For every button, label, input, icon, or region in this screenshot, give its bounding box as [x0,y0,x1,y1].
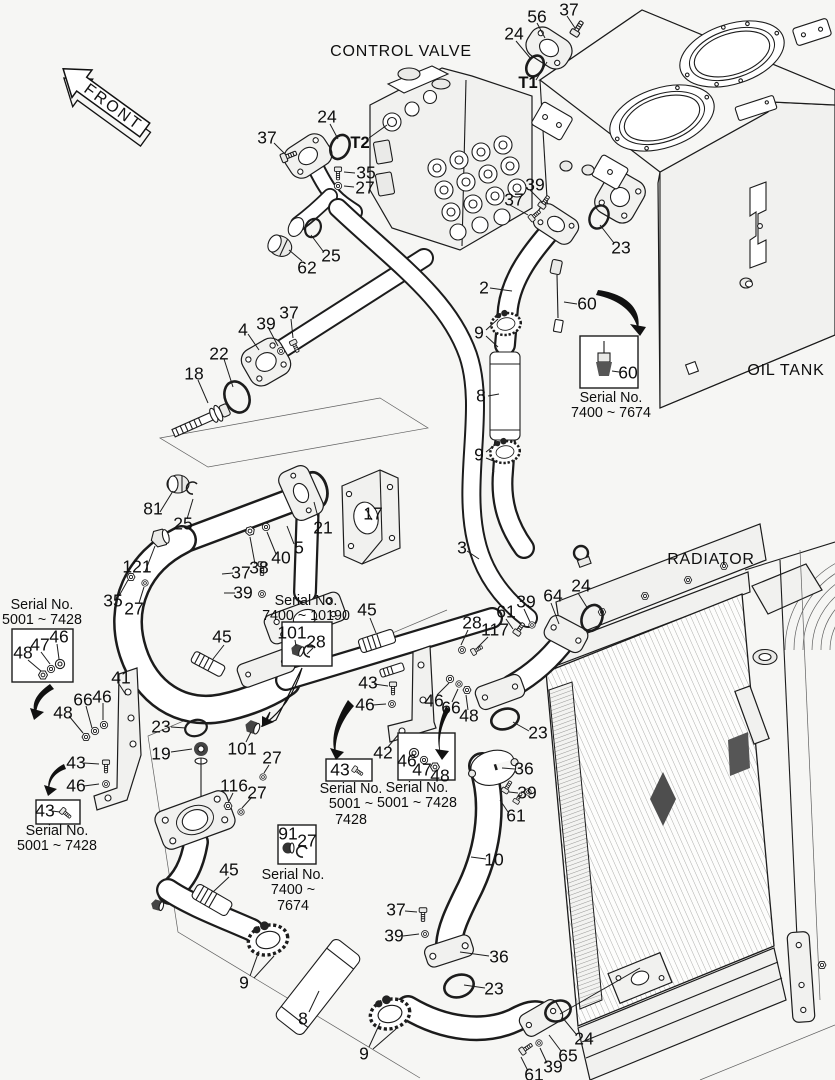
serial-box-46-47-48b [398,733,455,780]
sensor-60 [550,259,563,332]
serial-box-91-27 [278,825,316,864]
plug-18 [170,401,232,441]
serial-boxes [12,290,646,864]
leader-lines [28,16,640,1071]
parts-diagram: FRONT CONTROL VALVE OIL TANK RADIATOR 56… [0,0,835,1080]
serial-box-101-28 [282,622,332,666]
stud-45 [190,651,226,678]
front-arrow: FRONT [48,56,159,153]
bracket-41 [94,668,141,810]
diagram-art: FRONT [0,0,835,1080]
block-17 [342,470,400,564]
serial-box-43b [326,759,372,781]
bracket-42 [388,646,436,742]
radiator-side-bracket [787,931,815,1022]
